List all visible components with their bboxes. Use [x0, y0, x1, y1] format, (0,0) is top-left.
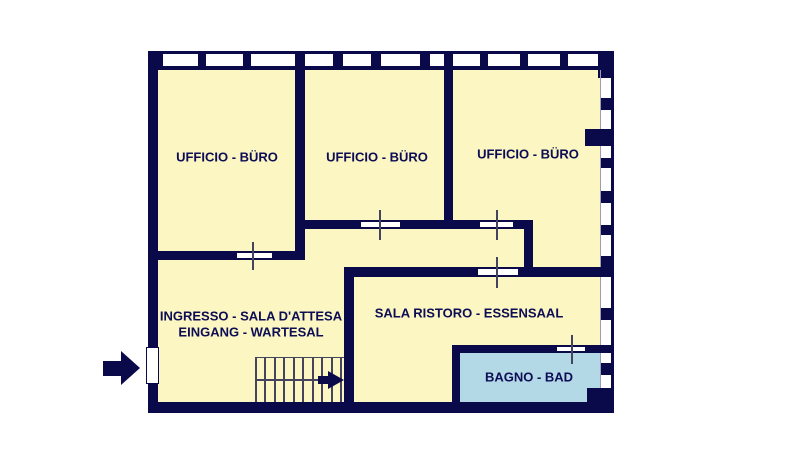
- window-pier: [601, 363, 611, 375]
- wall-top-inner-line: [158, 66, 601, 70]
- window-pier: [601, 308, 611, 320]
- window-pier: [243, 51, 251, 66]
- entrance-arrow-icon: [121, 351, 140, 385]
- entrance-label-german: EINGANG - WARTESAL: [160, 324, 342, 340]
- window: [237, 251, 272, 260]
- window-tick: [496, 210, 498, 240]
- wall-entrance-top: [148, 251, 305, 260]
- wall-right-outer-line: [611, 51, 614, 413]
- window-pier: [601, 191, 611, 203]
- entrance-arrow-tail: [103, 361, 121, 376]
- wall-bathroom-left: [452, 345, 460, 402]
- entrance-door-opening: [146, 347, 159, 384]
- stairs-direction-line: [256, 379, 326, 381]
- window-pier: [601, 256, 611, 267]
- room-label-break-room: SALA RISTORO - ESSENSAAL: [375, 305, 564, 321]
- window-pier: [371, 51, 381, 66]
- room-label-office-3: UFFICIO - BÜRO: [477, 146, 579, 162]
- room-label-office-2: UFFICIO - BÜRO: [326, 149, 428, 165]
- wall-corner-bottom-right: [587, 388, 614, 413]
- window-tick: [571, 335, 573, 364]
- chimney-block: [585, 129, 614, 146]
- stairs-arrow-tail: [318, 376, 328, 384]
- window-pier: [560, 51, 568, 66]
- window-pier: [601, 345, 611, 353]
- room-label-bathroom: BAGNO - BAD: [485, 369, 573, 385]
- window-pier: [333, 51, 343, 66]
- wall-bottom: [148, 402, 614, 413]
- window-pier: [601, 225, 611, 235]
- window-pier: [520, 51, 528, 66]
- window-tick: [496, 257, 498, 288]
- entrance-label-italian: INGRESSO - SALA D'ATTESA: [160, 309, 342, 325]
- window: [478, 267, 518, 277]
- window-pier: [198, 51, 206, 66]
- window-tick: [379, 210, 381, 240]
- room-label-office-1: UFFICIO - BÜRO: [176, 149, 278, 165]
- window-pier: [420, 51, 430, 66]
- window-pier: [601, 158, 611, 168]
- wall-top-outer-line: [148, 51, 614, 54]
- window-pier: [601, 98, 611, 110]
- room-label-entrance: INGRESSO - SALA D'ATTESA EINGANG - WARTE…: [160, 309, 342, 340]
- floor-plan: UFFICIO - BÜRO UFFICIO - BÜRO UFFICIO - …: [0, 0, 800, 467]
- wall-breakroom-left: [344, 267, 354, 402]
- wall-office2-office3: [444, 51, 453, 229]
- window-pier: [480, 51, 488, 66]
- window-tick: [252, 242, 254, 270]
- stairs-up-arrow-icon: [328, 371, 344, 389]
- room-office-2: [305, 70, 444, 220]
